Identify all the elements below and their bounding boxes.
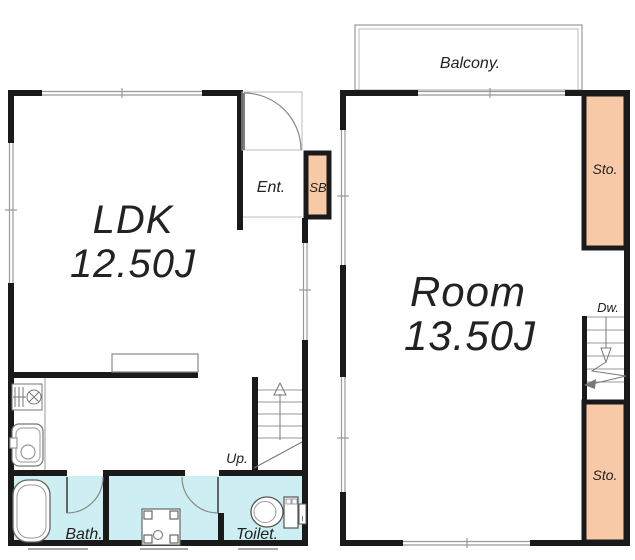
entrance-door-arc <box>244 93 301 150</box>
wall-stairs-side <box>582 316 587 402</box>
ldk-label: LDK <box>93 198 175 242</box>
pan-corner <box>170 535 178 543</box>
ldk-size-label: 12.50J <box>70 242 196 286</box>
pan-corner <box>144 511 152 519</box>
room-label: Room <box>410 268 526 315</box>
floor2-plan: Balcony. Sto. Dw. Sto. Room 13.50J <box>337 25 630 548</box>
pan-drain <box>154 531 163 540</box>
balcony-label: Balcony. <box>440 55 500 72</box>
stair-arrow-zigzag <box>592 362 626 384</box>
kitchen-counter <box>112 354 198 372</box>
stairs-up-label: Up. <box>226 450 248 466</box>
wall-bottom-row <box>8 470 67 476</box>
floorplan-image: LDK 12.50J Ent. SB Up. Bath. Toilet. <box>0 0 635 560</box>
wall-bath-partition <box>103 470 109 546</box>
wall <box>340 90 346 130</box>
stair-arrow-head <box>601 348 611 362</box>
wall-stairs-side <box>252 377 258 470</box>
storage-bottom-label: Sto. <box>593 467 618 483</box>
bathtub-icon <box>13 480 50 542</box>
wall-toilet-partition <box>218 513 224 546</box>
wall <box>340 492 346 546</box>
entrance-label: Ent. <box>257 179 285 196</box>
stairs-down-label: Dw. <box>597 300 619 315</box>
shoebox-label: SB <box>309 180 327 195</box>
floor1-plan: LDK 12.50J Ent. SB Up. Bath. Toilet. <box>5 88 329 549</box>
wall <box>340 265 346 377</box>
bath-label: Bath. <box>65 526 102 543</box>
room-size-label: 13.50J <box>404 312 536 359</box>
wall-bottom-row <box>219 470 308 476</box>
storage-top-label: Sto. <box>593 161 618 177</box>
wall <box>302 218 308 243</box>
sink-tap <box>10 438 17 448</box>
stair-break-line <box>254 442 302 468</box>
wall <box>340 90 418 96</box>
wall <box>202 90 242 96</box>
toilet-label: Toilet. <box>236 526 278 543</box>
wall-kitchen <box>8 372 198 378</box>
pan-corner <box>170 511 178 519</box>
staircase-up <box>254 383 302 468</box>
washing-machine-pan-icon <box>142 509 180 545</box>
floorplan-svg: LDK 12.50J Ent. SB Up. Bath. Toilet. <box>0 0 635 560</box>
wall <box>340 540 403 546</box>
stair-arrow-head <box>274 383 286 395</box>
pan-corner <box>144 535 152 543</box>
wall-bottom-row <box>103 470 185 476</box>
staircase-down <box>584 317 626 389</box>
kitchen-sink-icon <box>10 424 43 466</box>
wall <box>8 90 14 143</box>
stove-icon <box>12 384 42 410</box>
